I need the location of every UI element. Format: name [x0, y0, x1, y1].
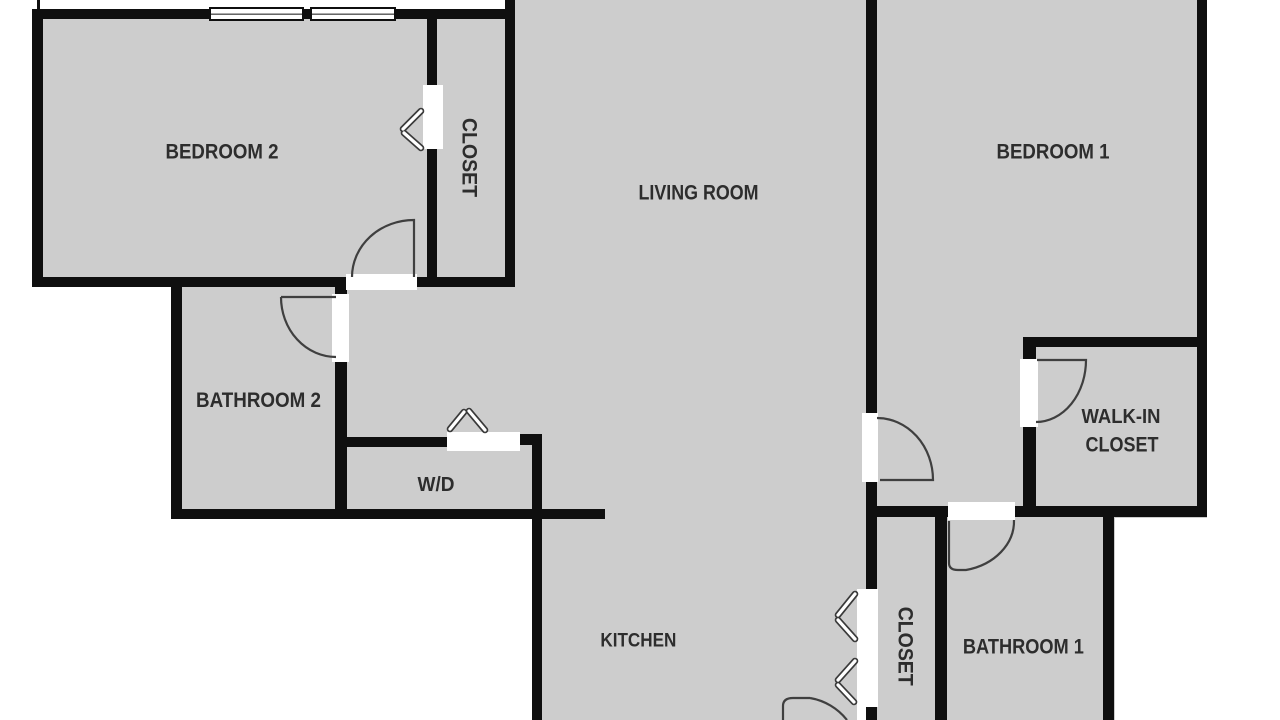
svg-text:BATHROOM 2: BATHROOM 2: [196, 389, 321, 412]
svg-text:CLOSET: CLOSET: [458, 118, 481, 197]
svg-text:BEDROOM 2: BEDROOM 2: [166, 140, 279, 163]
svg-text:KITCHEN: KITCHEN: [600, 630, 676, 652]
svg-text:CLOSET: CLOSET: [894, 607, 917, 686]
svg-text:CLOSET: CLOSET: [1086, 433, 1159, 456]
svg-text:W/D: W/D: [418, 474, 455, 496]
svg-text:WALK-IN: WALK-IN: [1082, 406, 1161, 428]
svg-text:BATHROOM 1: BATHROOM 1: [963, 636, 1084, 659]
svg-text:LIVING ROOM: LIVING ROOM: [639, 181, 759, 204]
svg-text:BEDROOM 1: BEDROOM 1: [997, 140, 1110, 163]
